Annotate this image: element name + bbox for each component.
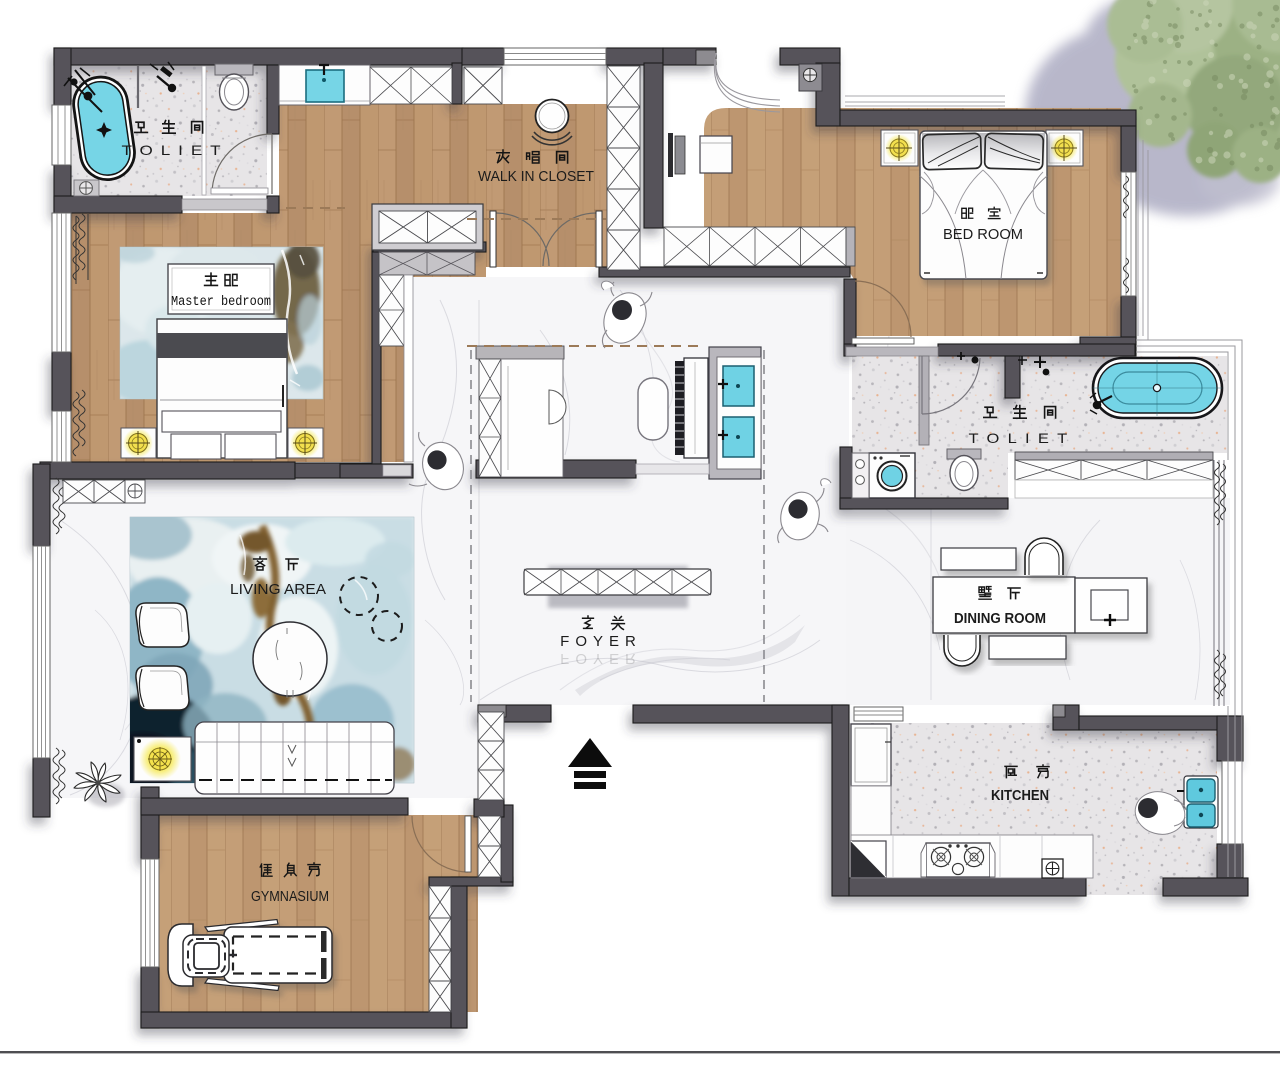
svg-text:LIVING AREA: LIVING AREA bbox=[230, 582, 326, 598]
svg-text:TOLIET: TOLIET bbox=[969, 430, 1076, 446]
svg-text:BED ROOM: BED ROOM bbox=[943, 226, 1023, 243]
svg-text:KITCHEN: KITCHEN bbox=[991, 788, 1049, 804]
svg-text:FOYER: FOYER bbox=[560, 633, 642, 650]
svg-text:WALK IN CLOSET: WALK IN CLOSET bbox=[478, 169, 594, 185]
svg-text:DINING ROOM: DINING ROOM bbox=[954, 611, 1046, 627]
svg-text:Master bedroom: Master bedroom bbox=[171, 295, 271, 310]
svg-text:TOLIET: TOLIET bbox=[122, 142, 229, 158]
svg-text:GYMNASIUM: GYMNASIUM bbox=[251, 889, 329, 905]
svg-text:FOYER: FOYER bbox=[560, 650, 642, 667]
